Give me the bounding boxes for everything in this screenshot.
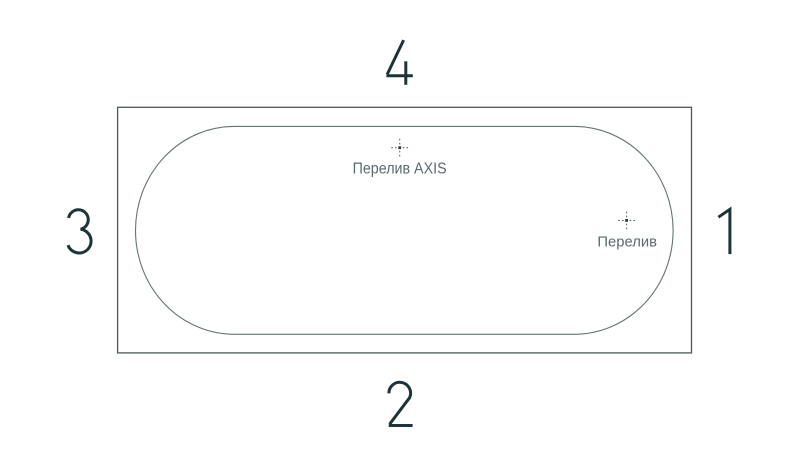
svg-text:Перелив: Перелив [597,235,657,251]
svg-text:Перелив AXIS: Перелив AXIS [353,161,447,178]
